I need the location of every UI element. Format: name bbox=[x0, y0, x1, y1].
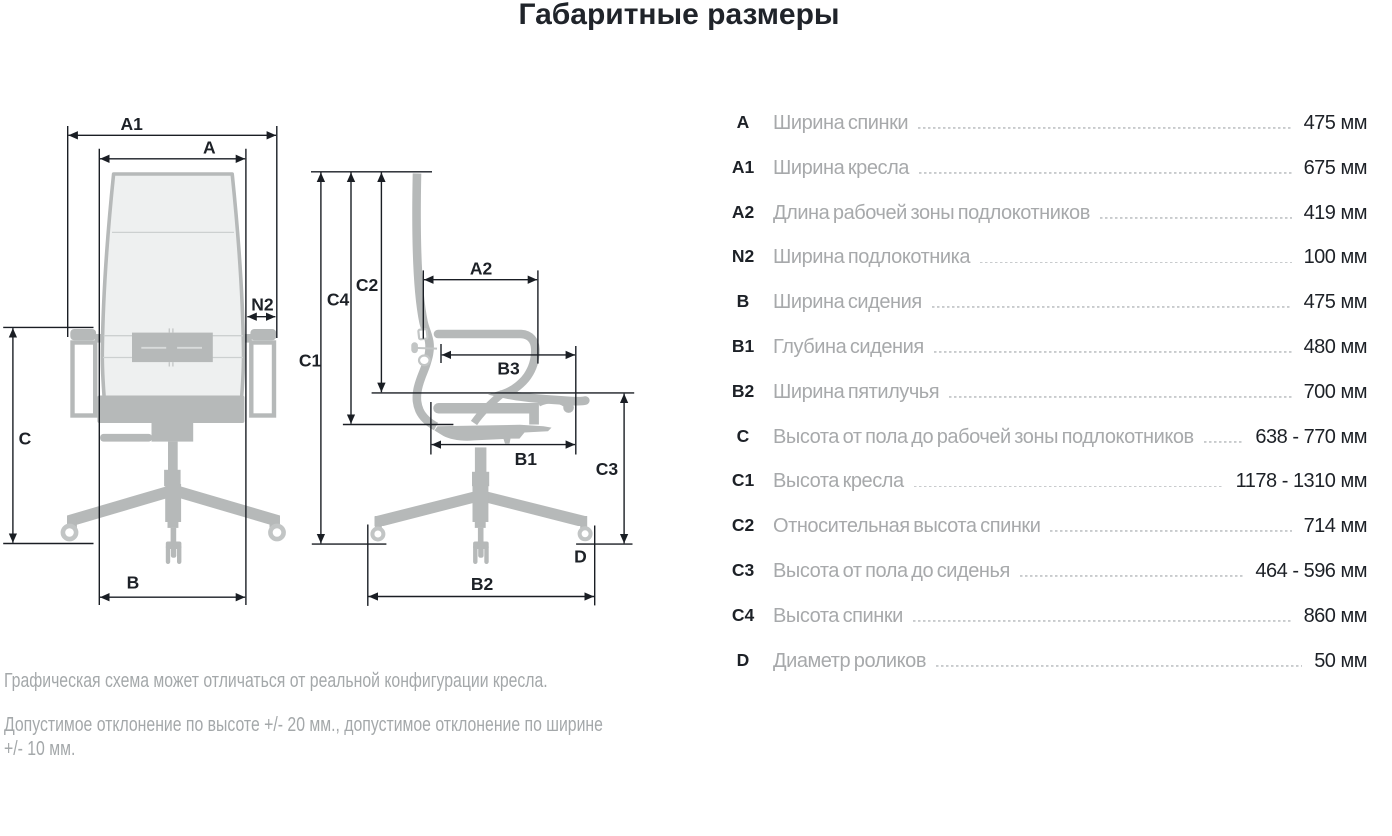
svg-text:C3: C3 bbox=[596, 459, 619, 479]
svg-text:C1: C1 bbox=[299, 351, 322, 371]
svg-text:A: A bbox=[203, 138, 216, 158]
svg-text:C: C bbox=[19, 429, 32, 449]
svg-text:N2: N2 bbox=[251, 295, 274, 315]
svg-text:C2: C2 bbox=[356, 275, 379, 295]
svg-text:B: B bbox=[127, 573, 140, 593]
svg-text:A1: A1 bbox=[121, 114, 144, 134]
svg-text:B3: B3 bbox=[497, 359, 520, 379]
svg-text:C4: C4 bbox=[327, 290, 350, 310]
svg-text:B2: B2 bbox=[471, 574, 494, 594]
svg-text:B1: B1 bbox=[515, 449, 538, 469]
svg-text:D: D bbox=[574, 547, 587, 567]
svg-text:A2: A2 bbox=[470, 259, 493, 279]
